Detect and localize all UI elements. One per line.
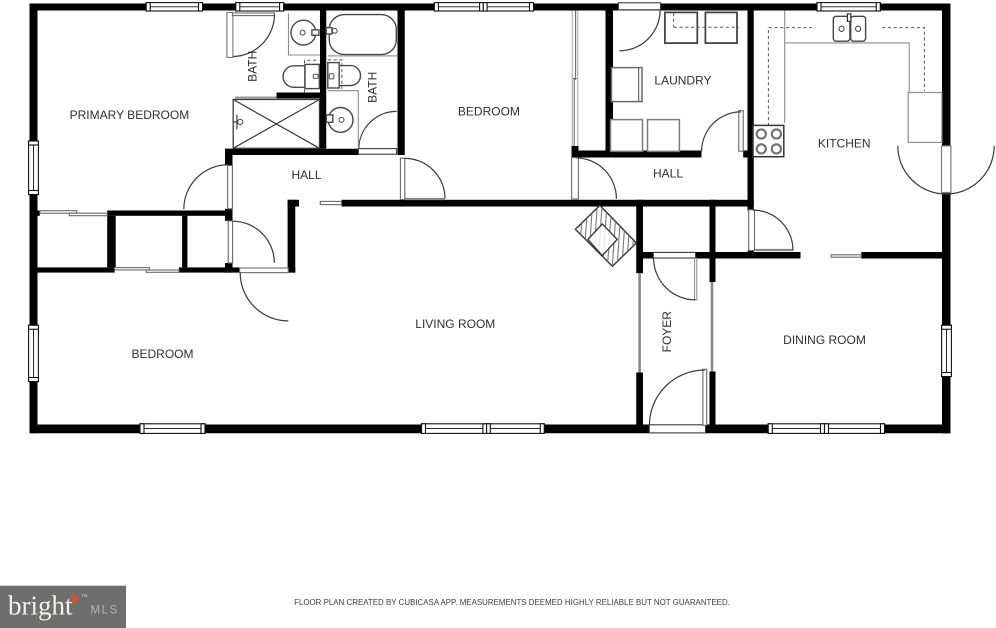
svg-text:FOYER: FOYER xyxy=(660,311,674,353)
svg-text:FLOOR PLAN CREATED BY CUBICASA: FLOOR PLAN CREATED BY CUBICASA APP. MEAS… xyxy=(294,598,730,607)
svg-text:LAUNDRY: LAUNDRY xyxy=(654,73,711,87)
svg-text:MLS: MLS xyxy=(91,605,119,617)
svg-text:bright: bright xyxy=(8,591,73,621)
svg-text:HALL: HALL xyxy=(291,168,321,182)
svg-text:DINING ROOM: DINING ROOM xyxy=(783,333,866,347)
svg-text:TM: TM xyxy=(82,593,89,598)
svg-text:LIVING ROOM: LIVING ROOM xyxy=(415,317,495,331)
svg-text:KITCHEN: KITCHEN xyxy=(818,137,871,151)
svg-text:BEDROOM: BEDROOM xyxy=(131,347,193,361)
svg-text:PRIMARY BEDROOM: PRIMARY BEDROOM xyxy=(70,108,190,122)
svg-text:BATH: BATH xyxy=(246,51,260,82)
svg-text:BATH: BATH xyxy=(366,72,380,103)
svg-text:BEDROOM: BEDROOM xyxy=(458,104,520,118)
svg-text:HALL: HALL xyxy=(653,167,683,181)
